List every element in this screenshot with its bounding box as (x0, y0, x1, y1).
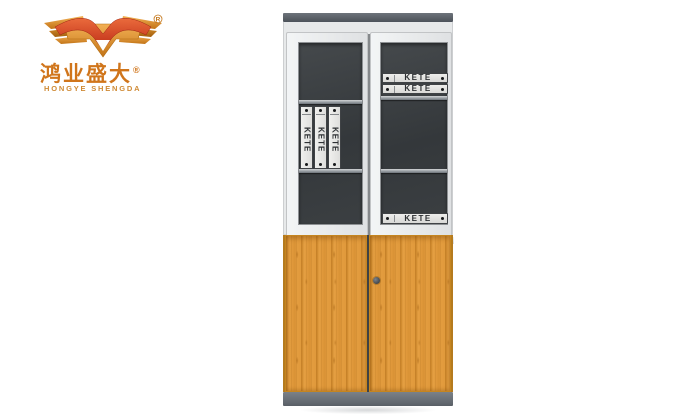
upper-glass-section: KETE KETE KETE (283, 22, 453, 235)
shelf-edge (299, 169, 362, 173)
cabinet-top-cap (283, 13, 453, 22)
file-binder-horizontal: KETE (382, 73, 448, 83)
floor-shadow (273, 404, 463, 416)
binder-rivet (386, 77, 389, 80)
binder-label-divider (302, 114, 311, 115)
glass-panel-left: KETE KETE KETE (298, 42, 363, 225)
binder-rivet (333, 109, 336, 112)
binder-rivet (441, 77, 444, 80)
binder-group-vertical: KETE KETE KETE (300, 106, 341, 169)
binder-rivet (305, 109, 308, 112)
binder-label-divider (330, 114, 339, 115)
binder-rivet (305, 163, 308, 166)
binder-rivet (386, 217, 389, 220)
file-binder-vertical: KETE (314, 106, 327, 169)
binder-rivet (333, 163, 336, 166)
glass-panel-right: KETE KETE KETE (380, 42, 448, 225)
registered-mark-letter: R (156, 16, 161, 23)
glass-door-left: KETE KETE KETE (286, 32, 368, 237)
file-binder-vertical: KETE (328, 106, 341, 169)
binder-label: KETE (303, 116, 311, 163)
file-binder-vertical: KETE (300, 106, 313, 169)
binder-rivet (319, 109, 322, 112)
brand-logo: R 鸿业盛大® HONGYE SHENGDA (40, 8, 180, 98)
binder-label-divider (316, 114, 325, 115)
binder-label: KETE (395, 85, 441, 93)
registered-trademark-symbol: ® (133, 65, 142, 75)
file-binder-horizontal: KETE (382, 84, 448, 94)
lower-wood-section (283, 235, 453, 392)
filing-cabinet: KETE KETE KETE (283, 13, 453, 406)
shelf-edge (381, 169, 447, 173)
binder-rivet (441, 88, 444, 91)
file-binder-horizontal: KETE (382, 213, 448, 224)
binder-label: KETE (317, 116, 325, 163)
binder-rivet (386, 88, 389, 91)
shelf-edge (299, 100, 362, 104)
binder-label: KETE (331, 116, 339, 163)
wood-door-left (285, 235, 367, 392)
binder-label: KETE (395, 215, 441, 223)
binder-rivet (319, 163, 322, 166)
wood-door-right (369, 235, 451, 392)
product-photo: R 鸿业盛大® HONGYE SHENGDA KETE (0, 0, 700, 420)
brand-wing-emblem-icon: R (42, 12, 164, 60)
shelf-edge (381, 96, 447, 100)
glass-door-right: KETE KETE KETE (370, 32, 452, 237)
lock-keyhole-icon (373, 277, 380, 284)
brand-name-english: HONGYE SHENGDA (44, 84, 141, 93)
binder-rivet (441, 217, 444, 220)
wood-door-gap-divider (367, 235, 369, 392)
binder-label: KETE (395, 74, 441, 82)
brand-name-chinese-text: 鸿业盛大 (40, 63, 132, 86)
